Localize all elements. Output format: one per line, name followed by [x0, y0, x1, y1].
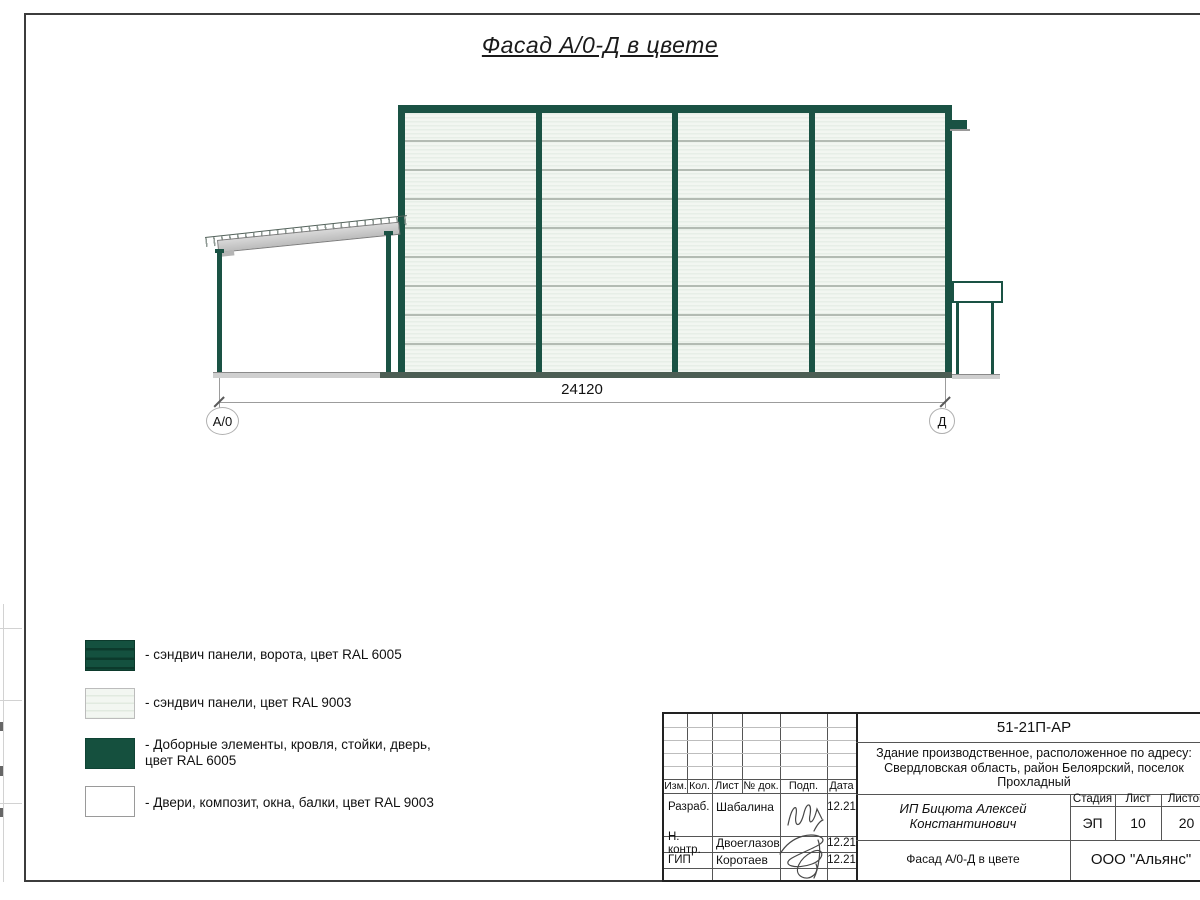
tb-line	[664, 793, 856, 794]
tb-name: Шабалина	[716, 801, 778, 815]
extension-line-right	[945, 378, 946, 408]
drawing-title: Фасад А/0-Д в цвете	[0, 32, 1200, 59]
ground-base-right	[952, 374, 1000, 379]
dimension-line	[219, 402, 945, 403]
tb-line	[664, 740, 856, 741]
tb-line	[664, 727, 856, 728]
roof-outlet-shadow	[950, 129, 970, 131]
tb-line	[664, 753, 856, 754]
tb-sheets-label: Листов	[1161, 794, 1200, 806]
entrance-canopy-post	[991, 303, 994, 375]
tb-project-address: Здание производственное, расположенное п…	[856, 742, 1200, 794]
tb-client: ИП Бицюта Алексей Константинович	[856, 794, 1070, 840]
tb-sheet-label: Лист	[1115, 794, 1161, 806]
dimension-value: 24120	[532, 381, 632, 398]
canopy-post-right	[386, 234, 391, 374]
tb-date: 12.21	[827, 801, 856, 815]
tb-stage-value: ЭП	[1070, 806, 1115, 840]
legend-label: - Доборные элементы, кровля, стойки, две…	[145, 737, 485, 769]
side-stamp-fragment	[0, 628, 22, 629]
facade-mullion	[672, 113, 678, 372]
side-stamp-fragment	[0, 803, 22, 804]
facade-mullion	[536, 113, 542, 372]
facade-top-band	[398, 105, 952, 113]
legend-swatch-gate-panels	[85, 640, 135, 671]
side-stamp-fragment	[3, 604, 4, 882]
legend-swatch-doors	[85, 786, 135, 817]
tb-name: Коротаев	[716, 854, 778, 868]
drawing-sheet: { "page": { "title": "Фасад А/0-Д в цвет…	[0, 0, 1200, 900]
tb-line	[664, 766, 856, 767]
entrance-canopy-post	[956, 303, 959, 375]
tb-sheets-value: 20	[1161, 806, 1200, 840]
tb-role: Разраб.	[668, 801, 712, 815]
tb-role: ГИП	[668, 854, 712, 868]
tb-sheet-title: Фасад А/0-Д в цвете	[856, 840, 1070, 880]
legend-label: - сэндвич панели, цвет RAL 9003	[145, 695, 485, 711]
tb-doc-number: 51-21П-АР	[856, 714, 1200, 742]
tb-col-kol: Кол.	[687, 779, 712, 793]
facade-right-edge	[945, 105, 952, 372]
legend-label: - Двери, композит, окна, балки, цвет RAL…	[145, 795, 505, 811]
tb-role: Н. контр.	[668, 837, 714, 851]
entrance-canopy-beam	[952, 281, 1003, 303]
tb-col-podp: Подп.	[780, 779, 827, 793]
facade-mullion	[809, 113, 815, 372]
side-stamp-fragment	[0, 808, 3, 817]
tb-company: ООО "Альянс"	[1070, 840, 1200, 880]
facade-left-edge	[398, 105, 405, 372]
axis-bubble-left: А/0	[206, 407, 239, 435]
tb-stage-label: Стадия	[1070, 794, 1115, 806]
tb-name: Двоеглазов	[716, 837, 780, 851]
side-stamp-fragment	[0, 722, 3, 731]
canopy-post-left	[217, 252, 222, 374]
tb-col-ndoc: № док.	[742, 779, 780, 793]
legend-swatch-trim	[85, 738, 135, 769]
signature	[774, 826, 834, 882]
axis-bubble-right: Д	[929, 408, 955, 434]
legend-label: - сэндвич панели, ворота, цвет RAL 6005	[145, 647, 485, 663]
building-base	[380, 372, 952, 378]
tb-col-data: Дата	[827, 779, 856, 793]
legend-swatch-light-panels	[85, 688, 135, 719]
side-stamp-fragment	[0, 700, 22, 701]
extension-line-left	[219, 378, 220, 408]
side-stamp-fragment	[0, 766, 3, 776]
tb-col-list: Лист	[712, 779, 742, 793]
tb-col-izm: Изм.	[664, 779, 687, 793]
title-block: Изм. Кол. Лист № док. Подп. Дата Разраб.…	[662, 712, 1200, 882]
tb-sheet-value: 10	[1115, 806, 1161, 840]
roof-outlet	[950, 120, 967, 129]
